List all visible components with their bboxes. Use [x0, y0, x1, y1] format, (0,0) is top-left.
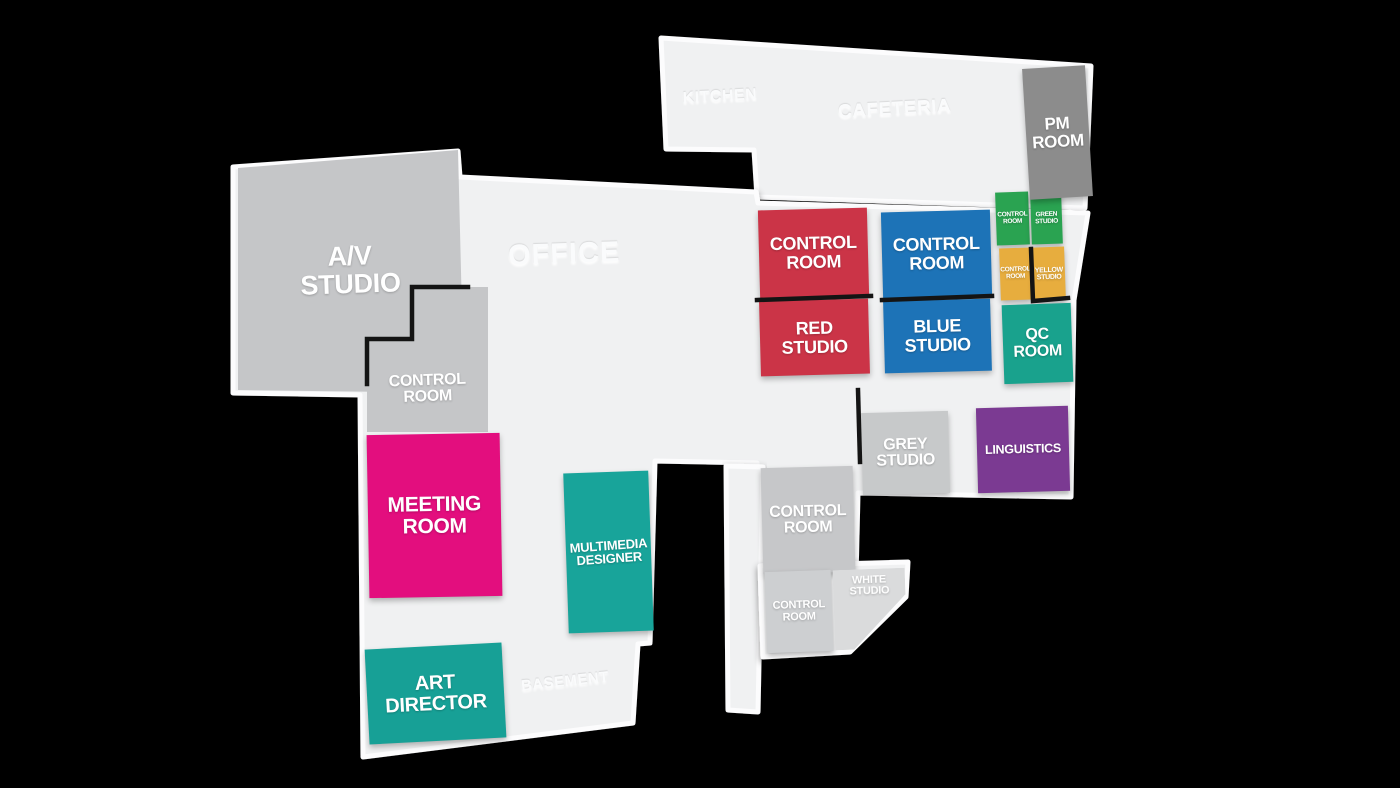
room-control-room-yellow-label: CONTROL ROOM	[1000, 267, 1030, 281]
room-green-studio-label: GREEN STUDIO	[1035, 212, 1058, 226]
room-red-studio[interactable]: RED STUDIO	[759, 299, 870, 377]
studio-floor-plan: KITCHEN CAFETERIA OFFICE BASEMENT A/V ST…	[0, 0, 1400, 788]
room-qc-room-label: QC ROOM	[1013, 326, 1063, 361]
room-pm-room-label: PM ROOM	[1031, 113, 1085, 151]
room-white-studio-label: WHITE STUDIO	[849, 574, 890, 598]
area-label-cafeteria: CAFETERIA	[837, 96, 938, 123]
room-multimedia-designer[interactable]: MULTIMEDIA DESIGNER	[563, 471, 654, 634]
room-blue-studio-label: BLUE STUDIO	[904, 317, 971, 356]
room-red-studio-label: RED STUDIO	[781, 318, 848, 357]
walls-layer	[0, 0, 1400, 788]
room-control-room-blue-label: CONTROL ROOM	[893, 234, 981, 273]
room-control-room-grey[interactable]: CONTROL ROOM	[761, 466, 856, 574]
room-multimedia-designer-label: MULTIMEDIA DESIGNER	[569, 536, 648, 568]
room-art-director[interactable]: ART DIRECTOR	[365, 642, 507, 744]
room-yellow-studio[interactable]: YELLOW STUDIO	[1032, 246, 1066, 301]
room-av-studio-label: A/V STUDIO	[299, 241, 401, 300]
room-control-room-grey-label: CONTROL ROOM	[769, 503, 847, 538]
room-linguistics[interactable]: LINGUISTICS	[976, 406, 1070, 493]
room-control-room-yellow[interactable]: CONTROL ROOM	[999, 247, 1032, 300]
room-white-studio[interactable]: WHITE STUDIO	[833, 568, 908, 650]
room-control-room-red[interactable]: CONTROL ROOM	[758, 208, 869, 299]
room-control-room-red-label: CONTROL ROOM	[770, 233, 858, 272]
room-control-room-green[interactable]: CONTROL ROOM	[995, 191, 1030, 245]
room-control-room-white-label: CONTROL ROOM	[772, 599, 825, 623]
floor-layer	[0, 0, 1400, 788]
room-pm-room[interactable]: PM ROOM	[1022, 65, 1093, 200]
room-linguistics-label: LINGUISTICS	[985, 442, 1061, 457]
room-grey-studio-label: GREY STUDIO	[876, 436, 935, 470]
room-blue-studio[interactable]: BLUE STUDIO	[883, 299, 992, 374]
room-meeting-room-label: MEETING ROOM	[387, 493, 481, 538]
room-control-room-white[interactable]: CONTROL ROOM	[765, 570, 834, 653]
room-control-room-av-label: CONTROL ROOM	[388, 372, 466, 408]
area-label-basement: BASEMENT	[519, 668, 610, 694]
floor-slab-corridor	[726, 466, 763, 712]
room-yellow-studio-label: YELLOW STUDIO	[1035, 266, 1064, 281]
wall-grey-studio	[858, 390, 860, 462]
room-green-studio[interactable]: GREEN STUDIO	[1030, 193, 1063, 244]
room-art-director-label: ART DIRECTOR	[384, 670, 488, 716]
room-qc-room[interactable]: QC ROOM	[1002, 303, 1074, 384]
room-control-room-green-label: CONTROL ROOM	[997, 211, 1027, 225]
area-label-office: OFFICE	[507, 236, 618, 273]
room-grey-studio[interactable]: GREY STUDIO	[861, 411, 950, 495]
room-meeting-room[interactable]: MEETING ROOM	[367, 433, 503, 598]
area-label-kitchen: KITCHEN	[680, 86, 761, 108]
room-control-room-blue[interactable]: CONTROL ROOM	[881, 210, 992, 299]
